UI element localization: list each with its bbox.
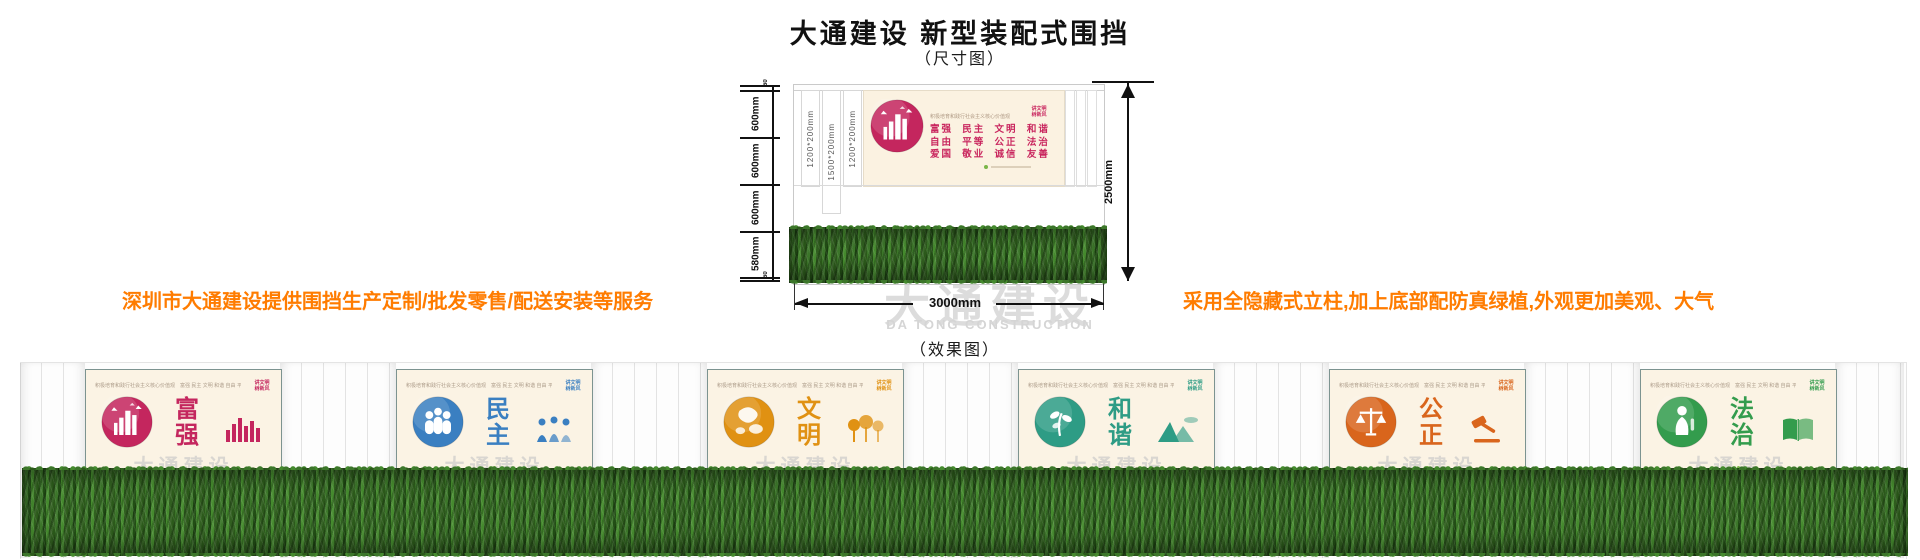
height-dim-cap xyxy=(1092,81,1154,83)
city-art-icon xyxy=(101,396,153,453)
bars-icon xyxy=(222,414,266,449)
panel-corner-text: 讲文明树新风 xyxy=(1182,380,1208,392)
width-dimension-line xyxy=(996,303,1104,305)
book-icon xyxy=(1777,414,1821,449)
gavel-icon xyxy=(1466,414,1510,449)
people-art-icon xyxy=(412,396,464,453)
post-column: 1200*200mm xyxy=(801,90,820,187)
core-values-text: 富强 民主 文明 和谐 自由 平等 公正 法治 爱国 敬业 诚信 友善 xyxy=(930,124,1050,162)
trees-icon xyxy=(844,414,888,449)
post-size-label: 1200*200mm xyxy=(806,110,815,168)
height-dimension-line xyxy=(1127,82,1129,281)
panel-title: 法治 xyxy=(1723,397,1761,449)
globe-art-icon xyxy=(723,396,775,453)
panel-slogan: 积极培育和践行社会主义核心价值观 富强 民主 文明 和谐 自由 平等 公正 法治… xyxy=(717,382,863,389)
panel-slogan: 积极培育和践行社会主义核心价值观 富强 民主 文明 和谐 自由 平等 公正 法治… xyxy=(1339,382,1485,389)
post-column: 1500*200mm xyxy=(822,90,841,214)
panel-slogan: 积极培育和践行社会主义核心价值观 富强 民主 文明 和谐 自由 平等 公正 法治… xyxy=(406,382,552,389)
arrow-left-icon xyxy=(795,298,808,308)
panel-title: 富强 xyxy=(168,397,206,449)
feature-note: 采用全隐藏式立柱,加上底部配防真绿植,外观更加美观、大气 xyxy=(1183,285,1714,314)
plant-art-icon xyxy=(1034,396,1086,453)
post-column: 1200*200mm xyxy=(843,90,862,187)
scales-art-icon xyxy=(1345,396,1397,453)
figures-icon xyxy=(533,414,577,449)
effect-grass-hedge xyxy=(22,468,1908,556)
footer-line xyxy=(991,166,1031,168)
panel-title: 文明 xyxy=(790,397,828,449)
left-dimension-scale: 60600mm600mm600mm580mm60 xyxy=(740,85,773,282)
effect-caption: （效果图） xyxy=(845,336,1065,360)
banner-panel: 积极培育和践行社会主义核心价值观 讲文明树新风 富强 民主 文明 和谐 自由 平… xyxy=(863,90,1065,187)
panel-corner-text: 讲文明树新风 xyxy=(249,380,275,392)
panel-slogan: 积极培育和践行社会主义核心价值观 富强 民主 文明 和谐 自由 平等 公正 法治… xyxy=(1028,382,1174,389)
panel-title: 民主 xyxy=(479,397,517,449)
panel-title: 和谐 xyxy=(1101,397,1139,449)
post-size-label: 1200*200mm xyxy=(848,110,857,168)
arrow-right-icon xyxy=(1091,298,1104,308)
green-dot-icon xyxy=(984,165,988,169)
banner-corner-text: 讲文明树新风 xyxy=(1024,106,1054,118)
right-post xyxy=(1065,90,1075,187)
dimension-label: 600mm xyxy=(750,137,762,184)
left-dimension-line xyxy=(772,85,774,282)
dimension-label: 60 xyxy=(760,75,772,91)
right-post xyxy=(1076,90,1086,187)
panel-corner-text: 讲文明树新风 xyxy=(1493,380,1519,392)
poster-canvas: 大通建设 新型装配式围挡 （尺寸图） 大通建设 DA TONG CONSTRUC… xyxy=(0,0,1920,560)
arrow-up-icon xyxy=(1121,84,1135,98)
banner-footer xyxy=(984,165,1031,169)
panel-corner-text: 讲文明树新风 xyxy=(1804,380,1830,392)
panel-corner-text: 讲文明树新风 xyxy=(871,380,897,392)
height-total-label: 2500mm xyxy=(1103,150,1115,214)
diagram-grass-hedge xyxy=(789,227,1107,283)
dimension-label: 600mm xyxy=(750,184,762,231)
watermark-en: DA TONG CONSTRUCTION xyxy=(850,317,1130,332)
mountain-icon xyxy=(1155,414,1199,449)
panel-title: 公正 xyxy=(1412,397,1450,449)
panel-corner-text: 讲文明树新风 xyxy=(560,380,586,392)
arrow-down-icon xyxy=(1121,267,1135,281)
city-art-icon xyxy=(870,99,924,158)
post-size-label: 1500*200mm xyxy=(827,123,836,181)
panel-bottom-line xyxy=(794,185,1104,186)
right-post xyxy=(1087,90,1097,187)
width-dimension-line xyxy=(795,303,913,305)
panel-slogan: 积极培育和践行社会主义核心价值观 富强 民主 文明 和谐 自由 平等 公正 法治… xyxy=(95,382,241,389)
dimension-label: 600mm xyxy=(750,90,762,137)
service-note: 深圳市大通建设提供围挡生产定制/批发零售/配送安装等服务 xyxy=(122,285,653,314)
panel-slogan: 积极培育和践行社会主义核心价值观 富强 民主 文明 和谐 自由 平等 公正 法治… xyxy=(1650,382,1796,389)
width-total-label: 3000mm xyxy=(915,295,995,310)
figure-art-icon xyxy=(1656,396,1708,453)
dimension-caption: （尺寸图） xyxy=(0,45,1920,69)
